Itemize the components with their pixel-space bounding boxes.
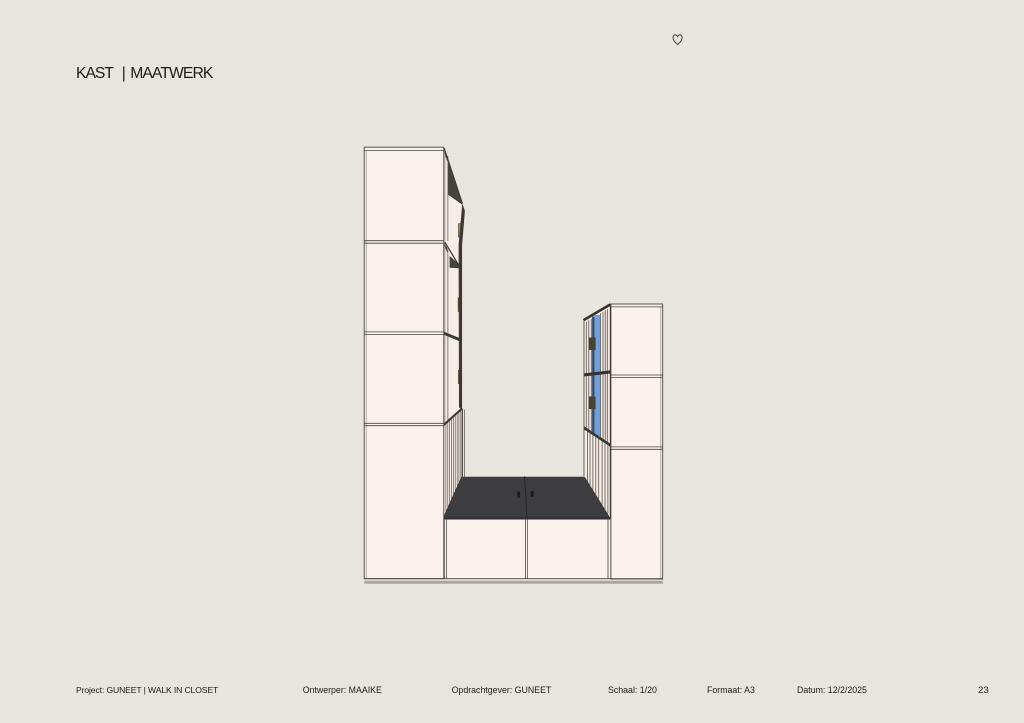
svg-text:Formaat: A3: Formaat: A3 [707,685,755,695]
svg-text:KAST: KAST [76,65,114,82]
svg-text:Ontwerper: MAAIKE: Ontwerper: MAAIKE [303,685,382,695]
svg-text:Schaal: 1/20: Schaal: 1/20 [608,685,657,695]
svg-text:Project: GUNEET | WALK IN CLOS: Project: GUNEET | WALK IN CLOSET [76,685,219,695]
svg-text:Datum: 12/2/2025: Datum: 12/2/2025 [797,685,867,695]
svg-text:Opdrachtgever: GUNEET: Opdrachtgever: GUNEET [452,685,552,695]
svg-text:|: | [122,65,126,82]
svg-text:MAATWERK: MAATWERK [130,65,214,82]
svg-text:23: 23 [978,685,989,696]
